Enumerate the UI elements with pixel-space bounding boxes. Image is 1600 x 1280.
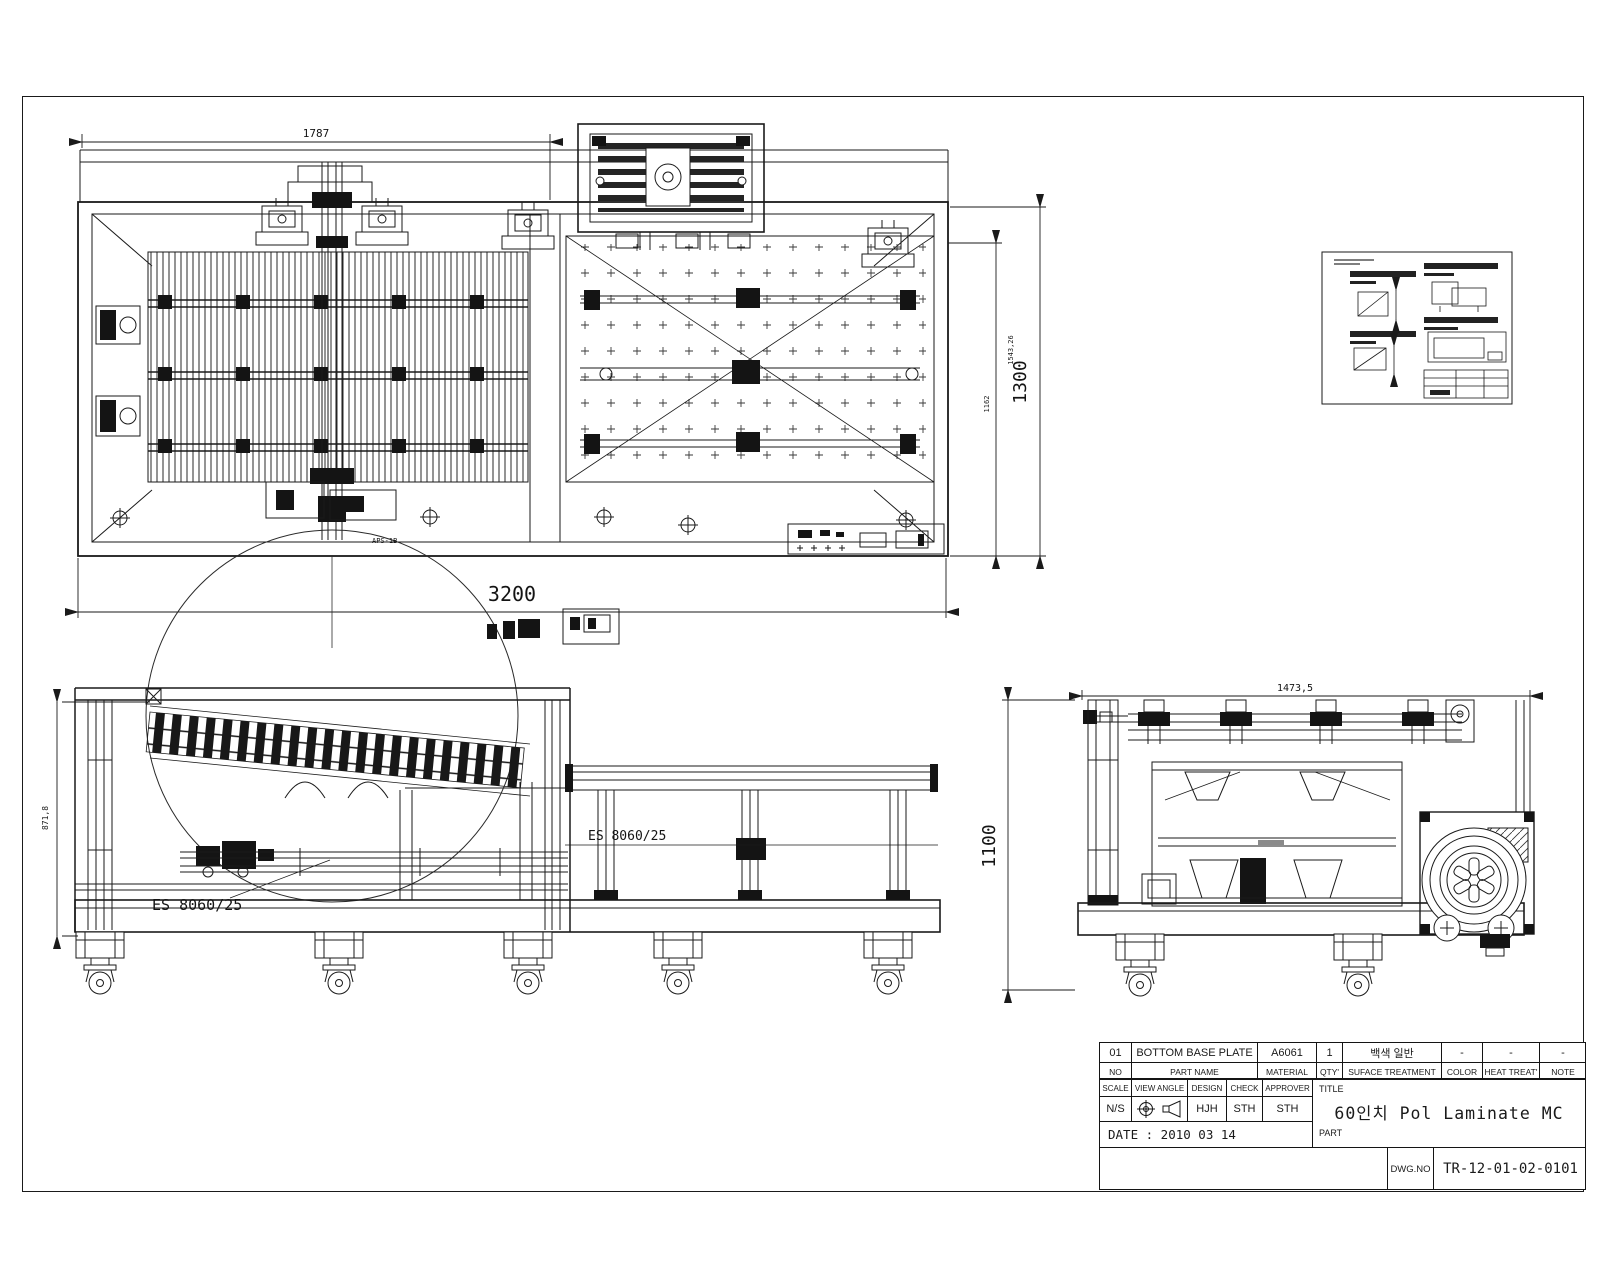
view-angle-header: VIEW ANGLE xyxy=(1132,1080,1188,1097)
color-value: - xyxy=(1442,1043,1483,1063)
label-aps: APS-1B xyxy=(372,537,397,545)
heat-treat-value: - xyxy=(1483,1043,1540,1063)
blower-unit xyxy=(1420,812,1534,941)
view-angle-symbol-icon xyxy=(1132,1097,1188,1122)
part-name-value: BOTTOM BASE PLATE xyxy=(1132,1043,1258,1063)
part-label: PART xyxy=(1319,1128,1342,1138)
dim-plan-width-bottom: 3200 xyxy=(488,582,536,606)
heat-treat-header: HEAT TREAT' xyxy=(1483,1063,1540,1080)
material-header: MATERIAL xyxy=(1258,1063,1317,1080)
label-es-8060-25-left: ES 8060/25 xyxy=(152,896,242,914)
titleblock-dwgno-row: DWG.NO TR-12-01-02-0101 xyxy=(1099,1148,1586,1190)
check-header: CHECK xyxy=(1227,1080,1263,1097)
note-header: NOTE xyxy=(1540,1063,1586,1080)
approver-value: STH xyxy=(1263,1097,1312,1122)
dim-plan-height-inner: 1162 xyxy=(983,396,991,413)
titleblock-part-table: 01 BOTTOM BASE PLATE A6061 1 백색 일반 - - -… xyxy=(1099,1042,1586,1080)
control-panel-strip xyxy=(788,524,944,554)
end-view xyxy=(1078,700,1534,996)
titleblock-meta-table: SCALE VIEW ANGLE DESIGN CHECK APPROVER N… xyxy=(1099,1080,1313,1148)
dwgno-empty-cell xyxy=(1100,1148,1388,1190)
label-es-8060-25-right: ES 8060/25 xyxy=(588,829,666,844)
dwg-no-value: TR-12-01-02-0101 xyxy=(1434,1148,1587,1190)
qty-value: 1 xyxy=(1317,1043,1343,1063)
note-value: - xyxy=(1540,1043,1586,1063)
side-view xyxy=(75,688,940,994)
titleblock-title-area: TITLE 60인치 Pol Laminate MC PART xyxy=(1313,1080,1586,1148)
surface-treatment-value: 백색 일반 xyxy=(1343,1043,1442,1063)
color-header: COLOR xyxy=(1442,1063,1483,1080)
qty-header: QTY' xyxy=(1317,1063,1343,1080)
dim-end-width: 1473,5 xyxy=(1277,683,1313,694)
design-header: DESIGN xyxy=(1188,1080,1227,1097)
dim-plan-height-sub: 1543,26 xyxy=(1007,335,1015,365)
title-label: TITLE xyxy=(1319,1084,1344,1094)
approver-header: APPROVER xyxy=(1263,1080,1312,1097)
scale-header: SCALE xyxy=(1100,1080,1132,1097)
inset-mini-drawing xyxy=(1322,252,1512,404)
drawing-title: 60인치 Pol Laminate MC xyxy=(1313,1100,1585,1124)
material-value: A6061 xyxy=(1258,1043,1317,1063)
plan-view xyxy=(78,124,948,556)
mid-symbol-cluster xyxy=(487,609,619,644)
drawing-sheet: 1787 3200 1300 1543,26 1162 xyxy=(0,0,1600,1280)
surface-treatment-header: SUFACE TREATMENT xyxy=(1343,1063,1442,1080)
part-no-header: NO xyxy=(1100,1063,1132,1080)
date-value: DATE : 2010 03 14 xyxy=(1100,1122,1312,1146)
dim-side-height: 871,8 xyxy=(41,806,50,830)
dim-plan-width-top: 1787 xyxy=(303,127,330,140)
part-name-header: PART NAME xyxy=(1132,1063,1258,1080)
design-value: HJH xyxy=(1188,1097,1227,1122)
scale-value: N/S xyxy=(1100,1097,1132,1122)
dwg-no-label: DWG.NO xyxy=(1388,1148,1434,1190)
part-no-value: 01 xyxy=(1100,1043,1132,1063)
plan-motor-unit xyxy=(578,124,764,232)
check-value: STH xyxy=(1227,1097,1263,1122)
dim-end-height: 1100 xyxy=(979,824,1000,867)
dim-plan-height: 1300 xyxy=(1010,360,1031,403)
